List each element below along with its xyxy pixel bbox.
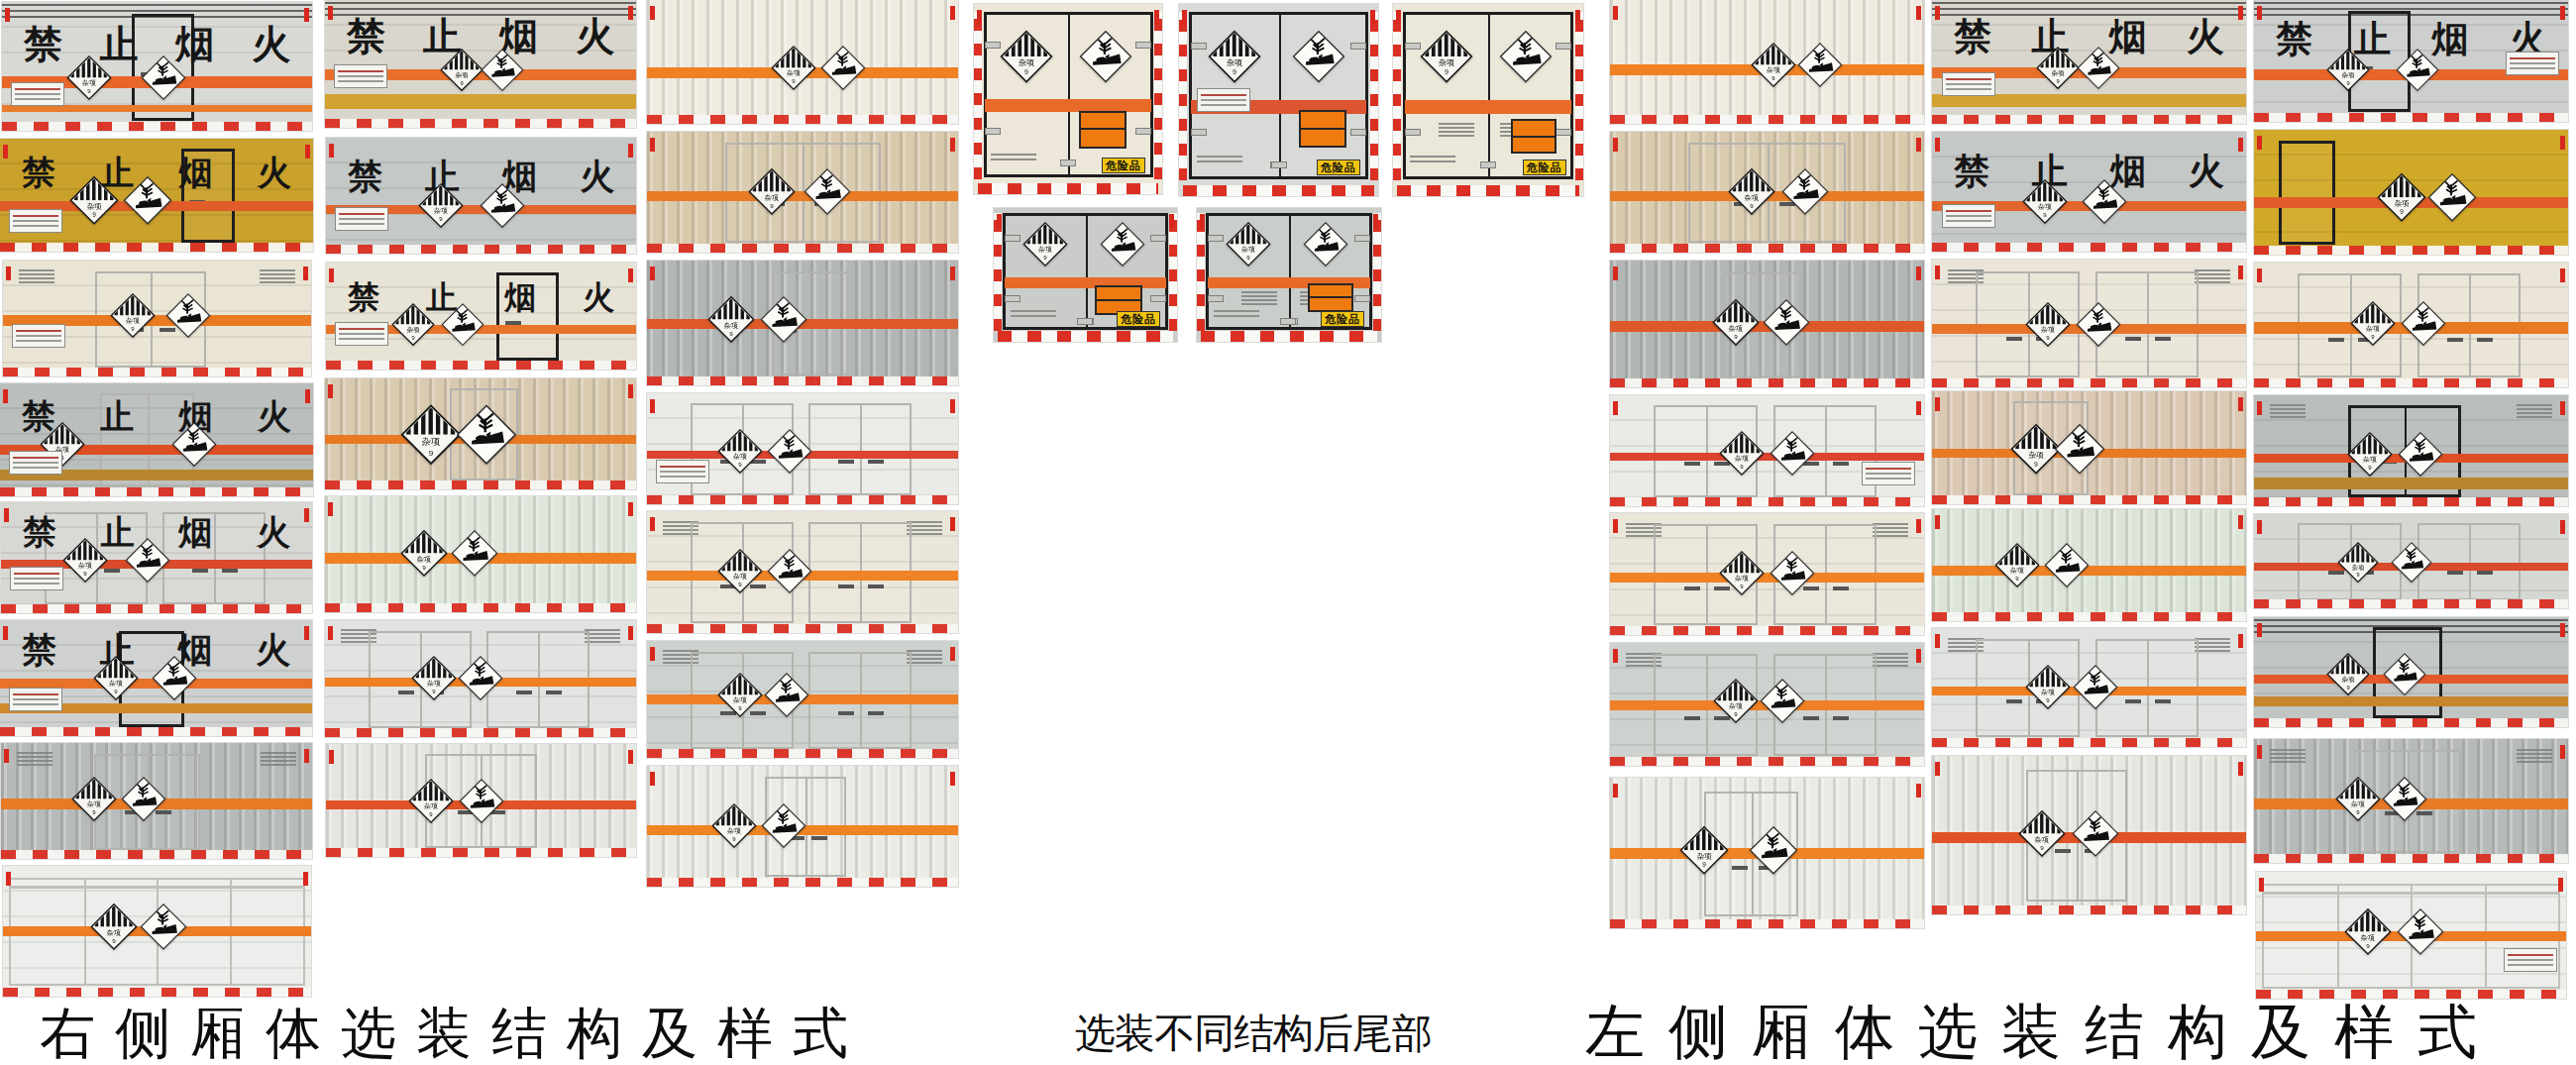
class9-misc-placard-icon: 杂项 9 <box>717 428 763 474</box>
reflective-strip <box>1610 919 1924 928</box>
environment-hazard-placard-icon <box>2391 542 2432 584</box>
class9-misc-placard-icon: 杂项 9 <box>1000 30 1053 83</box>
svg-text:杂项: 杂项 <box>78 562 92 569</box>
class9-misc-placard-icon: 杂项 9 <box>411 655 457 700</box>
truck-side-photo-F1: 禁止烟火 杂项 9 <box>2254 0 2568 122</box>
class9-misc-placard-icon: 杂项 9 <box>707 296 755 344</box>
environment-hazard-placard-icon <box>1499 30 1553 83</box>
svg-text:杂项: 杂项 <box>2035 835 2049 844</box>
no-fire-text-char: 禁 <box>348 276 379 320</box>
reflective-strip <box>647 495 958 504</box>
svg-text:杂项: 杂项 <box>764 192 778 201</box>
environment-hazard-placard-icon <box>121 776 166 821</box>
class9-misc-placard-icon: 杂项 9 <box>1994 543 2040 588</box>
environment-hazard-placard-icon <box>125 537 170 583</box>
truck-side-photo-A2: 禁止烟火 杂项 9 <box>0 139 313 252</box>
reflective-strip <box>647 878 958 887</box>
rear-bumper-reflectors <box>1183 185 1374 196</box>
environment-hazard-placard-icon <box>1760 679 1805 724</box>
svg-text:9: 9 <box>423 564 427 571</box>
class9-misc-placard-icon: 杂项 9 <box>71 776 117 821</box>
no-fire-text-char: 禁 <box>23 510 56 556</box>
reflective-strip <box>2 122 312 131</box>
svg-text:9: 9 <box>1024 68 1028 75</box>
svg-text:杂项: 杂项 <box>2041 689 2055 695</box>
class9-misc-placard-icon: 杂项 9 <box>69 176 119 226</box>
reflective-strip <box>1 604 312 613</box>
reflective-strip <box>0 243 313 252</box>
environment-hazard-placard-icon <box>1079 30 1132 83</box>
box-side-double-door <box>808 403 912 495</box>
environment-hazard-placard-icon <box>2054 423 2105 475</box>
class9-misc-placard-icon: 杂项 9 <box>1712 298 1760 346</box>
reflective-strip <box>325 480 636 489</box>
svg-text:9: 9 <box>112 937 116 944</box>
vent-grille-icon <box>17 752 53 767</box>
reflective-strip <box>647 115 958 124</box>
reflective-strip <box>647 376 958 385</box>
class9-misc-placard-icon: 杂项 9 <box>1679 825 1729 875</box>
environment-hazard-placard-icon <box>1303 221 1348 266</box>
svg-text:9: 9 <box>2347 685 2350 691</box>
no-fire-text-char: 禁 <box>2276 15 2312 64</box>
truck-side-photo-F7: 杂项 9 <box>2254 739 2568 863</box>
class9-misc-placard-icon: 杂项 9 <box>1719 430 1765 476</box>
environment-hazard-placard-icon <box>171 422 217 468</box>
secondary-stripe <box>325 94 636 108</box>
svg-text:杂项: 杂项 <box>107 928 121 937</box>
hazard-stripe <box>647 191 958 201</box>
no-fire-text-char: 火 <box>2187 12 2224 62</box>
environment-hazard-placard-icon <box>141 54 186 100</box>
no-fire-text-char: 烟 <box>179 151 213 196</box>
truck-side-photo-F2: 杂项 9 <box>2254 130 2568 255</box>
class9-misc-placard-icon: 杂项 9 <box>1226 221 1271 266</box>
svg-text:杂项: 杂项 <box>109 680 123 687</box>
environment-hazard-placard-icon <box>2072 810 2119 858</box>
reflective-strip <box>1610 378 1924 387</box>
vehicle-spec-plate <box>335 207 388 231</box>
svg-text:杂项: 杂项 <box>2028 451 2044 460</box>
spec-text-lines <box>1410 153 1455 165</box>
no-fire-text-char: 止 <box>100 394 134 440</box>
orange-dg-panel <box>1511 119 1556 154</box>
no-fire-text-char: 禁 <box>348 154 382 200</box>
svg-text:杂项: 杂项 <box>2367 325 2381 332</box>
environment-hazard-placard-icon <box>459 778 504 823</box>
vehicle-spec-plate <box>9 209 62 233</box>
truck-side-photo-A7: 杂项 9 <box>1 743 312 859</box>
svg-text:杂项: 杂项 <box>787 69 801 76</box>
no-fire-text-char: 火 <box>257 510 290 556</box>
environment-hazard-placard-icon <box>451 529 498 577</box>
spec-text-lines <box>1011 307 1056 320</box>
dangerous-goods-label: 危险品 <box>1117 311 1160 327</box>
environment-hazard-placard-icon <box>1100 221 1145 266</box>
class9-misc-placard-icon: 杂项 9 <box>2326 653 2370 696</box>
svg-text:杂项: 杂项 <box>733 574 747 581</box>
svg-text:杂项: 杂项 <box>1038 246 1052 253</box>
environment-hazard-placard-icon <box>764 673 809 718</box>
svg-text:杂项: 杂项 <box>2360 933 2374 942</box>
reflective-strip <box>1610 115 1924 124</box>
truck-side-photo-F5: 杂项 9 <box>2254 514 2568 608</box>
reflective-strip <box>1932 243 2246 252</box>
svg-text:杂项: 杂项 <box>1439 58 1454 67</box>
box-side-door <box>2279 141 2335 245</box>
svg-text:9: 9 <box>2347 80 2350 86</box>
vehicle-spec-plate <box>9 688 62 711</box>
truck-side-photo-F3: 杂项 9 <box>2254 263 2568 387</box>
reflective-strip <box>325 728 636 737</box>
svg-text:杂项: 杂项 <box>1729 323 1743 332</box>
truck-side-photo-E6: 杂项 9 <box>1932 628 2246 747</box>
svg-text:9: 9 <box>429 448 434 457</box>
environment-hazard-placard-icon <box>767 428 812 474</box>
svg-text:杂项: 杂项 <box>1227 58 1242 67</box>
svg-text:杂项: 杂项 <box>724 321 738 330</box>
class9-misc-placard-icon: 杂项 9 <box>391 303 435 347</box>
svg-text:杂项: 杂项 <box>2342 71 2356 78</box>
box-side-double-door <box>2417 523 2522 601</box>
truck-side-photo-C4: 杂项 9 <box>647 393 958 504</box>
truck-side-photo-A3: 杂项 9 <box>3 261 311 376</box>
class9-misc-placard-icon: 杂项 9 <box>408 778 454 823</box>
no-fire-text-char: 火 <box>580 154 614 200</box>
reflective-strip <box>2254 599 2568 608</box>
svg-text:杂项: 杂项 <box>406 326 420 333</box>
reflective-strip <box>326 848 636 857</box>
vehicle-spec-plate <box>12 324 65 348</box>
dangerous-goods-label: 危险品 <box>1321 311 1364 327</box>
vent-grille-icon <box>2195 638 2230 653</box>
vent-grille-icon <box>907 521 942 536</box>
vent-grille-icon <box>2517 404 2552 419</box>
orange-dg-panel <box>1308 283 1354 313</box>
reflective-strip <box>2254 497 2568 506</box>
class9-misc-placard-icon: 杂项 9 <box>2344 908 2392 956</box>
vent-grille-icon <box>2517 749 2552 764</box>
vehicle-spec-plate <box>2506 52 2559 75</box>
no-fire-text-char: 烟 <box>178 510 212 556</box>
svg-text:杂项: 杂项 <box>1735 576 1749 583</box>
truck-side-photo-C7: 杂项 9 <box>647 766 958 887</box>
reflective-strip <box>1610 757 1924 766</box>
rear-bumper-reflectors <box>998 331 1174 342</box>
reflective-strip <box>0 727 312 736</box>
svg-text:杂项: 杂项 <box>1735 455 1749 462</box>
reflective-strip <box>1610 626 1924 635</box>
reflective-strip <box>326 361 636 370</box>
class9-misc-placard-icon: 杂项 9 <box>2350 300 2396 346</box>
secondary-stripe <box>2 105 312 112</box>
environment-hazard-placard-icon <box>2382 777 2427 822</box>
vehicle-spec-plate <box>1197 88 1250 112</box>
environment-hazard-placard-icon <box>123 176 172 226</box>
svg-text:杂项: 杂项 <box>417 555 431 564</box>
environment-hazard-placard-icon <box>441 303 484 347</box>
truck-side-photo-B5: 杂项 9 <box>325 496 636 612</box>
environment-hazard-placard-icon <box>2082 179 2127 225</box>
svg-text:9: 9 <box>770 201 774 208</box>
svg-text:9: 9 <box>2356 572 2359 578</box>
svg-text:9: 9 <box>92 212 96 219</box>
svg-text:杂项: 杂项 <box>434 207 448 214</box>
environment-hazard-placard-icon <box>2398 431 2443 477</box>
environment-hazard-placard-icon <box>1781 167 1829 215</box>
class9-misc-placard-icon: 杂项 9 <box>1751 43 1796 88</box>
reflective-strip <box>647 624 958 633</box>
environment-hazard-placard-icon <box>165 292 211 338</box>
environment-hazard-placard-icon <box>2044 543 2090 588</box>
vent-grille-icon <box>261 752 296 767</box>
svg-text:9: 9 <box>2400 208 2404 215</box>
environment-hazard-placard-icon <box>2077 46 2120 89</box>
class9-misc-placard-icon: 杂项 9 <box>90 903 138 950</box>
rear-bumper-reflectors <box>1201 331 1378 342</box>
svg-text:杂项: 杂项 <box>1241 246 1255 253</box>
environment-hazard-placard-icon <box>152 656 197 701</box>
environment-hazard-placard-icon <box>456 403 517 465</box>
reflective-strip <box>2254 854 2568 863</box>
svg-text:9: 9 <box>1702 861 1706 868</box>
environment-hazard-placard-icon <box>458 655 503 700</box>
vehicle-spec-plate <box>10 567 63 590</box>
hazard-stripe <box>1610 453 1924 461</box>
vehicle-spec-plate <box>334 64 387 88</box>
no-fire-text-char: 火 <box>252 18 290 71</box>
caption-right-side-structures: 右侧厢体选装结构及样式 <box>40 997 884 1065</box>
class9-misc-placard-icon: 杂项 9 <box>400 403 462 465</box>
no-fire-text-char: 火 <box>583 276 614 320</box>
orange-dg-panel <box>1299 110 1346 149</box>
truck-side-photo-A6: 禁止烟火 杂项 9 <box>0 620 312 736</box>
environment-hazard-placard-icon <box>2427 172 2477 222</box>
class9-misc-placard-icon: 杂项 9 <box>110 292 156 338</box>
truck-side-photo-D6: 杂项 9 <box>1610 643 1924 766</box>
truck-side-photo-E5: 杂项 9 <box>1932 509 2246 621</box>
svg-text:杂项: 杂项 <box>2051 69 2065 76</box>
svg-text:杂项: 杂项 <box>1019 58 1034 67</box>
truck-side-photo-D1: 杂项 9 <box>1610 0 1924 124</box>
svg-text:9: 9 <box>2366 942 2370 949</box>
environment-hazard-placard-icon <box>140 903 187 950</box>
vehicle-spec-plate <box>656 460 709 483</box>
svg-text:杂项: 杂项 <box>733 696 747 703</box>
truck-rear-photo-R4: 杂项 9 危险品 <box>994 208 1177 342</box>
vent-grille-icon <box>2195 269 2230 284</box>
spec-text-lines <box>1197 153 1242 165</box>
class9-misc-placard-icon: 杂项 9 <box>717 673 763 718</box>
no-fire-text-char: 火 <box>2189 148 2224 196</box>
truck-side-photo-F8: 杂项 9 <box>2256 872 2566 999</box>
environment-hazard-placard-icon <box>2383 653 2426 696</box>
svg-text:杂项: 杂项 <box>2351 564 2364 571</box>
svg-text:杂项: 杂项 <box>87 800 101 807</box>
dangerous-goods-label: 危险品 <box>1523 160 1566 175</box>
vehicle-spec-plate <box>2504 948 2557 972</box>
caption-rear-structures: 选装不同结构后尾部 <box>1075 1007 1417 1061</box>
truck-side-photo-D7: 杂项 9 <box>1610 778 1924 928</box>
no-fire-text-char: 烟 <box>504 276 536 320</box>
environment-hazard-placard-icon <box>1763 298 1810 346</box>
class9-misc-placard-icon: 杂项 9 <box>1208 30 1261 83</box>
svg-text:杂项: 杂项 <box>2041 326 2055 333</box>
truck-side-photo-D4: 杂项 9 <box>1610 395 1924 506</box>
svg-text:杂项: 杂项 <box>1744 192 1758 201</box>
svg-text:9: 9 <box>2040 844 2044 851</box>
svg-text:9: 9 <box>729 330 733 337</box>
environment-hazard-placard-icon <box>2076 301 2121 347</box>
no-fire-text-char: 火 <box>258 151 291 196</box>
class9-misc-placard-icon: 杂项 9 <box>418 182 464 228</box>
environment-hazard-placard-icon <box>820 45 866 90</box>
reflective-strip <box>325 119 636 128</box>
truck-side-photo-D5: 杂项 9 <box>1610 513 1924 635</box>
truck-side-photo-B3: 禁止烟火 杂项 9 <box>326 263 636 370</box>
secondary-stripe <box>1932 94 2246 107</box>
class9-misc-placard-icon: 杂项 9 <box>717 549 763 594</box>
truck-side-photo-C1: 杂项 9 <box>647 0 958 124</box>
environment-hazard-placard-icon <box>767 549 812 594</box>
truck-rear-photo-R3: 杂项 9 危险品 <box>1393 4 1583 196</box>
truck-side-photo-E2: 禁止烟火 杂项 9 <box>1932 132 2246 252</box>
reflective-strip <box>647 244 958 253</box>
class9-misc-placard-icon: 杂项 9 <box>1022 221 1068 266</box>
no-fire-text-char: 禁 <box>22 627 56 674</box>
vent-grille-icon <box>260 269 295 284</box>
truck-side-photo-E1: 禁止烟火 杂项 9 <box>1932 0 2246 124</box>
reflective-strip <box>1 850 312 859</box>
vent-grille-icon <box>907 650 942 665</box>
no-fire-text-char: 火 <box>576 10 614 63</box>
reflective-strip <box>3 368 311 376</box>
environment-hazard-placard-icon <box>761 802 806 848</box>
reflective-strip <box>1932 612 2246 621</box>
truck-side-photo-C5: 杂项 9 <box>647 511 958 633</box>
class9-misc-placard-icon: 杂项 9 <box>1420 30 1473 83</box>
truck-side-photo-B6: 杂项 9 <box>325 620 636 737</box>
reflective-strip <box>326 245 636 254</box>
reflective-strip <box>647 749 958 758</box>
dangerous-goods-label: 危险品 <box>1317 160 1360 175</box>
svg-text:杂项: 杂项 <box>427 680 441 687</box>
reflective-strip <box>1610 497 1924 506</box>
svg-text:杂项: 杂项 <box>727 827 741 834</box>
class9-misc-placard-icon: 杂项 9 <box>1713 679 1759 724</box>
reflective-strip <box>1932 378 2246 387</box>
reflective-strip <box>1932 738 2246 747</box>
no-fire-text-char: 禁 <box>347 10 385 63</box>
svg-text:杂项: 杂项 <box>1729 703 1743 710</box>
class9-misc-placard-icon: 杂项 9 <box>2337 542 2379 584</box>
svg-text:杂项: 杂项 <box>82 79 96 86</box>
no-fire-text-char: 禁 <box>1954 148 1989 196</box>
reflective-strip <box>2254 378 2568 387</box>
svg-text:杂项: 杂项 <box>86 202 102 211</box>
truck-side-photo-C6: 杂项 9 <box>647 641 958 758</box>
class9-misc-placard-icon: 杂项 9 <box>2022 179 2068 225</box>
hazard-stripe <box>1610 573 1924 583</box>
svg-text:杂项: 杂项 <box>2342 676 2356 683</box>
truck-side-photo-F4: 杂项 9 <box>2254 395 2568 506</box>
vent-grille-icon <box>1873 653 1908 668</box>
svg-text:9: 9 <box>2034 461 2038 468</box>
spec-text-lines <box>1214 307 1259 320</box>
svg-text:杂项: 杂项 <box>2394 199 2410 208</box>
vent-grille-icon <box>19 269 54 284</box>
environment-hazard-placard-icon <box>1292 30 1345 83</box>
spec-text-lines <box>991 151 1036 163</box>
reflective-strip <box>1610 244 1924 253</box>
class9-misc-placard-icon: 杂项 9 <box>2335 777 2381 822</box>
environment-hazard-placard-icon <box>760 296 807 344</box>
reflective-strip <box>1932 115 2246 124</box>
class9-misc-placard-icon: 杂项 9 <box>771 45 816 90</box>
truck-side-photo-A4: 禁止烟火 杂项 9 <box>0 383 313 496</box>
rear-bumper-reflectors <box>978 183 1158 194</box>
rear-bumper-reflectors <box>1397 185 1579 196</box>
environment-hazard-placard-icon <box>481 48 524 91</box>
svg-text:9: 9 <box>411 335 414 341</box>
vehicle-spec-plate <box>335 322 388 346</box>
class9-misc-placard-icon: 杂项 9 <box>440 48 483 91</box>
reflective-strip <box>0 487 313 496</box>
svg-text:9: 9 <box>1233 69 1236 76</box>
class9-misc-placard-icon: 杂项 9 <box>1728 167 1775 215</box>
svg-text:杂项: 杂项 <box>2010 567 2024 574</box>
truck-side-photo-A5: 禁止烟火 杂项 9 <box>1 502 312 613</box>
svg-text:杂项: 杂项 <box>126 317 140 324</box>
reflective-strip <box>1932 495 2246 504</box>
reflective-strip <box>2254 113 2568 122</box>
svg-text:杂项: 杂项 <box>421 437 440 447</box>
reflective-strip <box>3 988 311 997</box>
vehicle-spec-plate <box>1942 72 1995 96</box>
class9-misc-placard-icon: 杂项 9 <box>2036 46 2080 89</box>
orange-dg-panel <box>1079 111 1127 149</box>
vehicle-spec-plate <box>1942 204 1995 228</box>
environment-hazard-placard-icon <box>2396 49 2439 92</box>
environment-hazard-placard-icon <box>2397 908 2444 956</box>
truck-side-photo-D2: 杂项 9 <box>1610 132 1924 253</box>
environment-hazard-placard-icon <box>2073 664 2118 709</box>
approval-photo-montage: 禁止烟火 杂项 9 禁止烟火 杂项 9 <box>0 0 2576 1065</box>
truck-side-photo-C2: 杂项 9 <box>647 132 958 253</box>
truck-side-photo-E7: 杂项 9 <box>1932 756 2246 914</box>
truck-side-photo-C3: 杂项 9 <box>647 261 958 385</box>
no-fire-text-char: 火 <box>256 627 290 674</box>
reflective-strip <box>1932 905 2246 914</box>
svg-text:杂项: 杂项 <box>2351 800 2365 807</box>
environment-hazard-placard-icon <box>1770 430 1815 476</box>
environment-hazard-placard-icon <box>804 167 851 215</box>
reflective-strip <box>2254 718 2568 727</box>
truck-side-photo-B1: 禁止烟火 杂项 9 <box>325 0 636 128</box>
class9-misc-placard-icon: 杂项 9 <box>748 167 796 215</box>
caption-left-side-structures: 左侧厢体选装结构及样式 <box>1585 993 2568 1065</box>
svg-text:杂项: 杂项 <box>733 453 747 460</box>
reflective-strip <box>325 603 636 612</box>
hazard-stripe <box>1405 100 1572 114</box>
class9-misc-placard-icon: 杂项 9 <box>1719 551 1765 596</box>
class9-misc-placard-icon: 杂项 9 <box>93 656 139 701</box>
environment-hazard-placard-icon <box>480 182 525 228</box>
no-fire-text-char: 火 <box>258 394 291 440</box>
svg-text:9: 9 <box>1734 332 1738 339</box>
class9-misc-placard-icon: 杂项 9 <box>62 537 108 583</box>
svg-text:9: 9 <box>1750 201 1754 208</box>
